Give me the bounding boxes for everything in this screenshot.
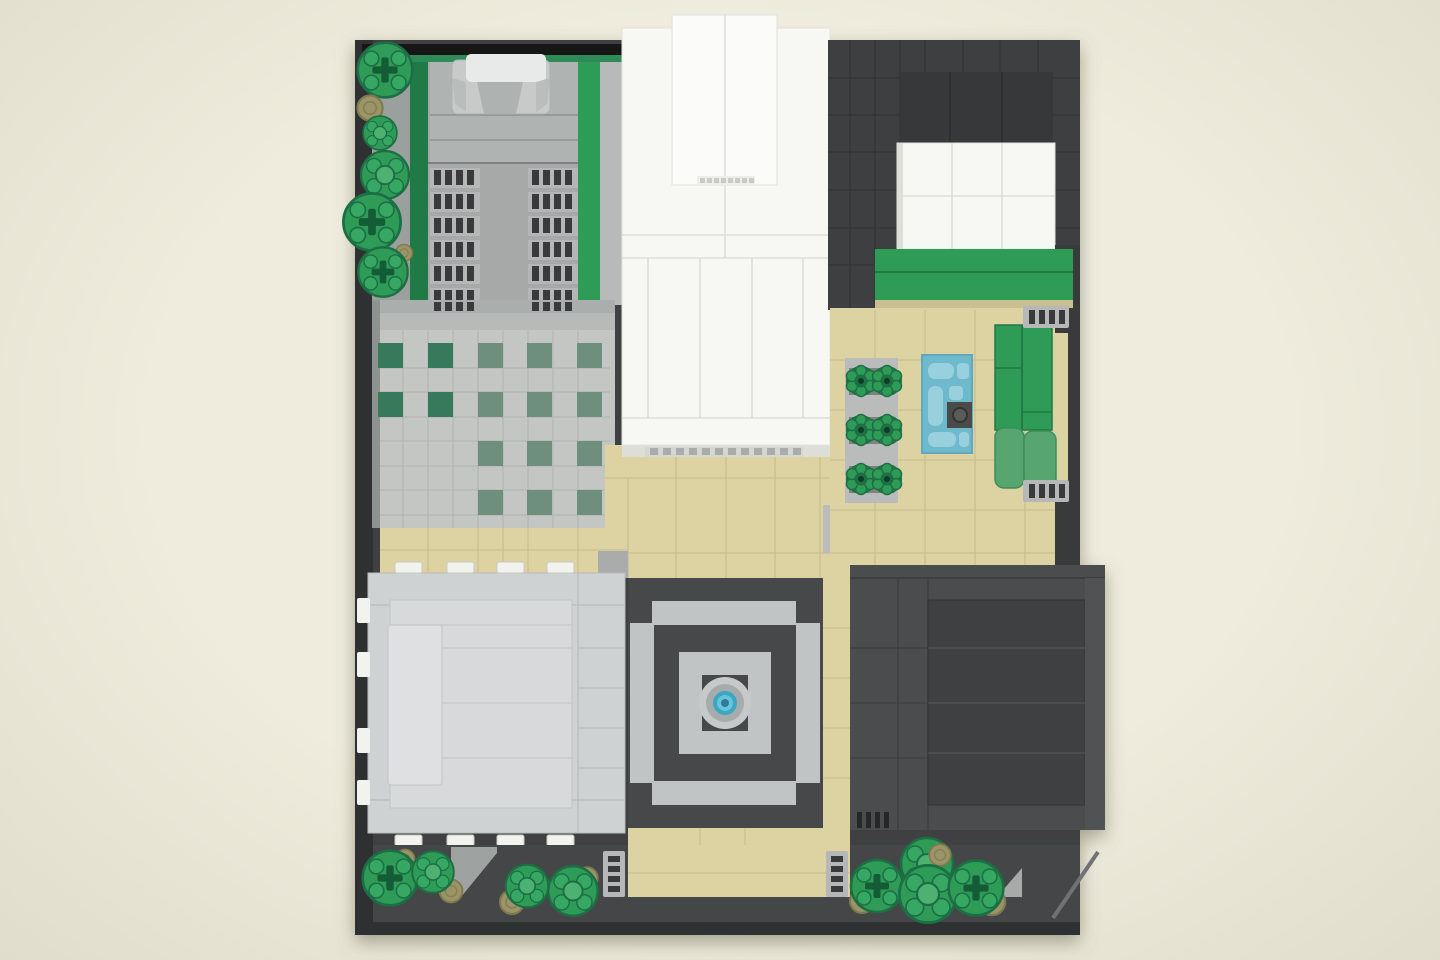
white-tower-stud-strip	[697, 176, 755, 185]
gray-building-penthouse	[388, 625, 442, 785]
plaza-top-band	[372, 300, 615, 313]
cafe-terrace	[830, 306, 1069, 578]
green-awning	[875, 249, 1073, 303]
dark-building	[850, 565, 1105, 830]
blue-pool-table	[922, 355, 972, 453]
white-building-base-studs	[645, 447, 803, 457]
vent-grille-top	[1023, 306, 1069, 328]
parked-car	[452, 54, 550, 114]
white-building	[622, 15, 830, 457]
left-tree-column	[343, 43, 412, 297]
street-grille-right	[826, 851, 848, 897]
tree	[949, 861, 1004, 916]
lego-model-render	[0, 0, 1440, 960]
olive-shrub	[929, 844, 951, 866]
tree	[412, 851, 454, 893]
garden-block	[372, 54, 630, 308]
tree	[358, 247, 407, 296]
annex-white-edge	[897, 143, 903, 249]
tree	[506, 865, 549, 908]
tree	[899, 865, 956, 922]
courtyard	[628, 578, 823, 828]
gray-building	[357, 562, 625, 846]
street-grille-left	[603, 851, 625, 897]
tree	[548, 866, 597, 915]
tree	[361, 151, 409, 199]
tree	[363, 116, 397, 150]
vent-grille-bottom	[1023, 480, 1069, 502]
hedge-right	[578, 62, 600, 302]
dark-building-right-wall	[1085, 578, 1105, 830]
plaza-step-band	[372, 313, 615, 330]
tree	[358, 43, 413, 98]
fountain	[699, 677, 751, 729]
tree	[343, 193, 400, 250]
annex-roof-block	[900, 72, 1053, 145]
hedge-left	[410, 62, 428, 305]
tree	[363, 851, 418, 906]
green-sofa	[995, 325, 1056, 488]
walkway-bottom-overlay	[628, 845, 850, 897]
tree	[851, 860, 903, 912]
plaza-block	[372, 300, 615, 528]
walkway-right-column	[823, 578, 850, 828]
